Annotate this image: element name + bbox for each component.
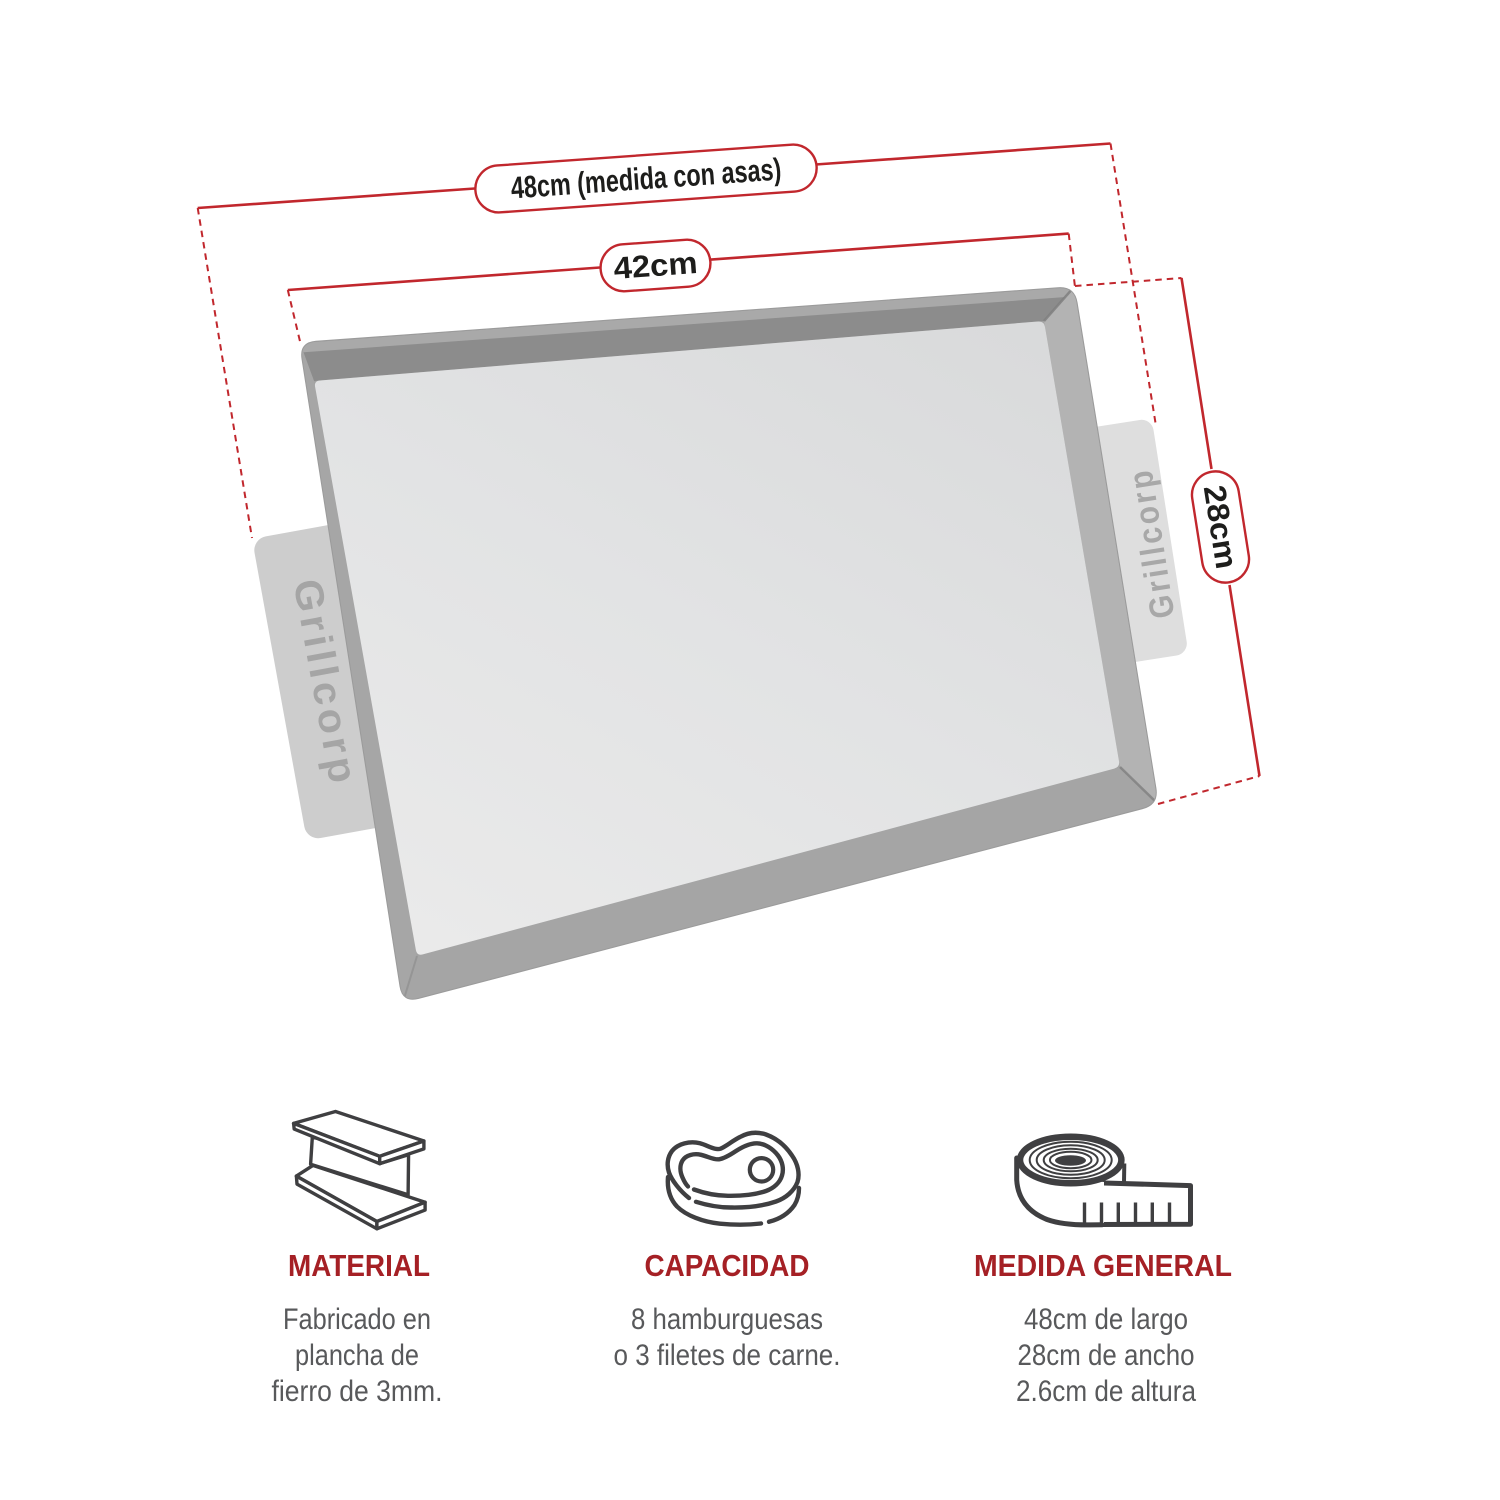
svg-text:fierro de 3mm.: fierro de 3mm. [272,1375,443,1408]
svg-text:MEDIDA GENERAL: MEDIDA GENERAL [974,1248,1232,1283]
svg-text:CAPACIDAD: CAPACIDAD [645,1248,810,1283]
svg-text:o 3 filetes de carne.: o 3 filetes de carne. [614,1339,841,1372]
svg-text:28cm de ancho: 28cm de ancho [1018,1339,1195,1372]
svg-text:48cm de largo: 48cm de largo [1024,1303,1188,1336]
svg-text:plancha de: plancha de [295,1339,419,1372]
svg-text:42cm: 42cm [612,245,698,286]
svg-text:MATERIAL: MATERIAL [288,1248,430,1283]
svg-text:8 hamburguesas: 8 hamburguesas [631,1303,823,1336]
svg-text:Fabricado en: Fabricado en [283,1303,431,1336]
svg-text:2.6cm de altura: 2.6cm de altura [1016,1375,1196,1408]
